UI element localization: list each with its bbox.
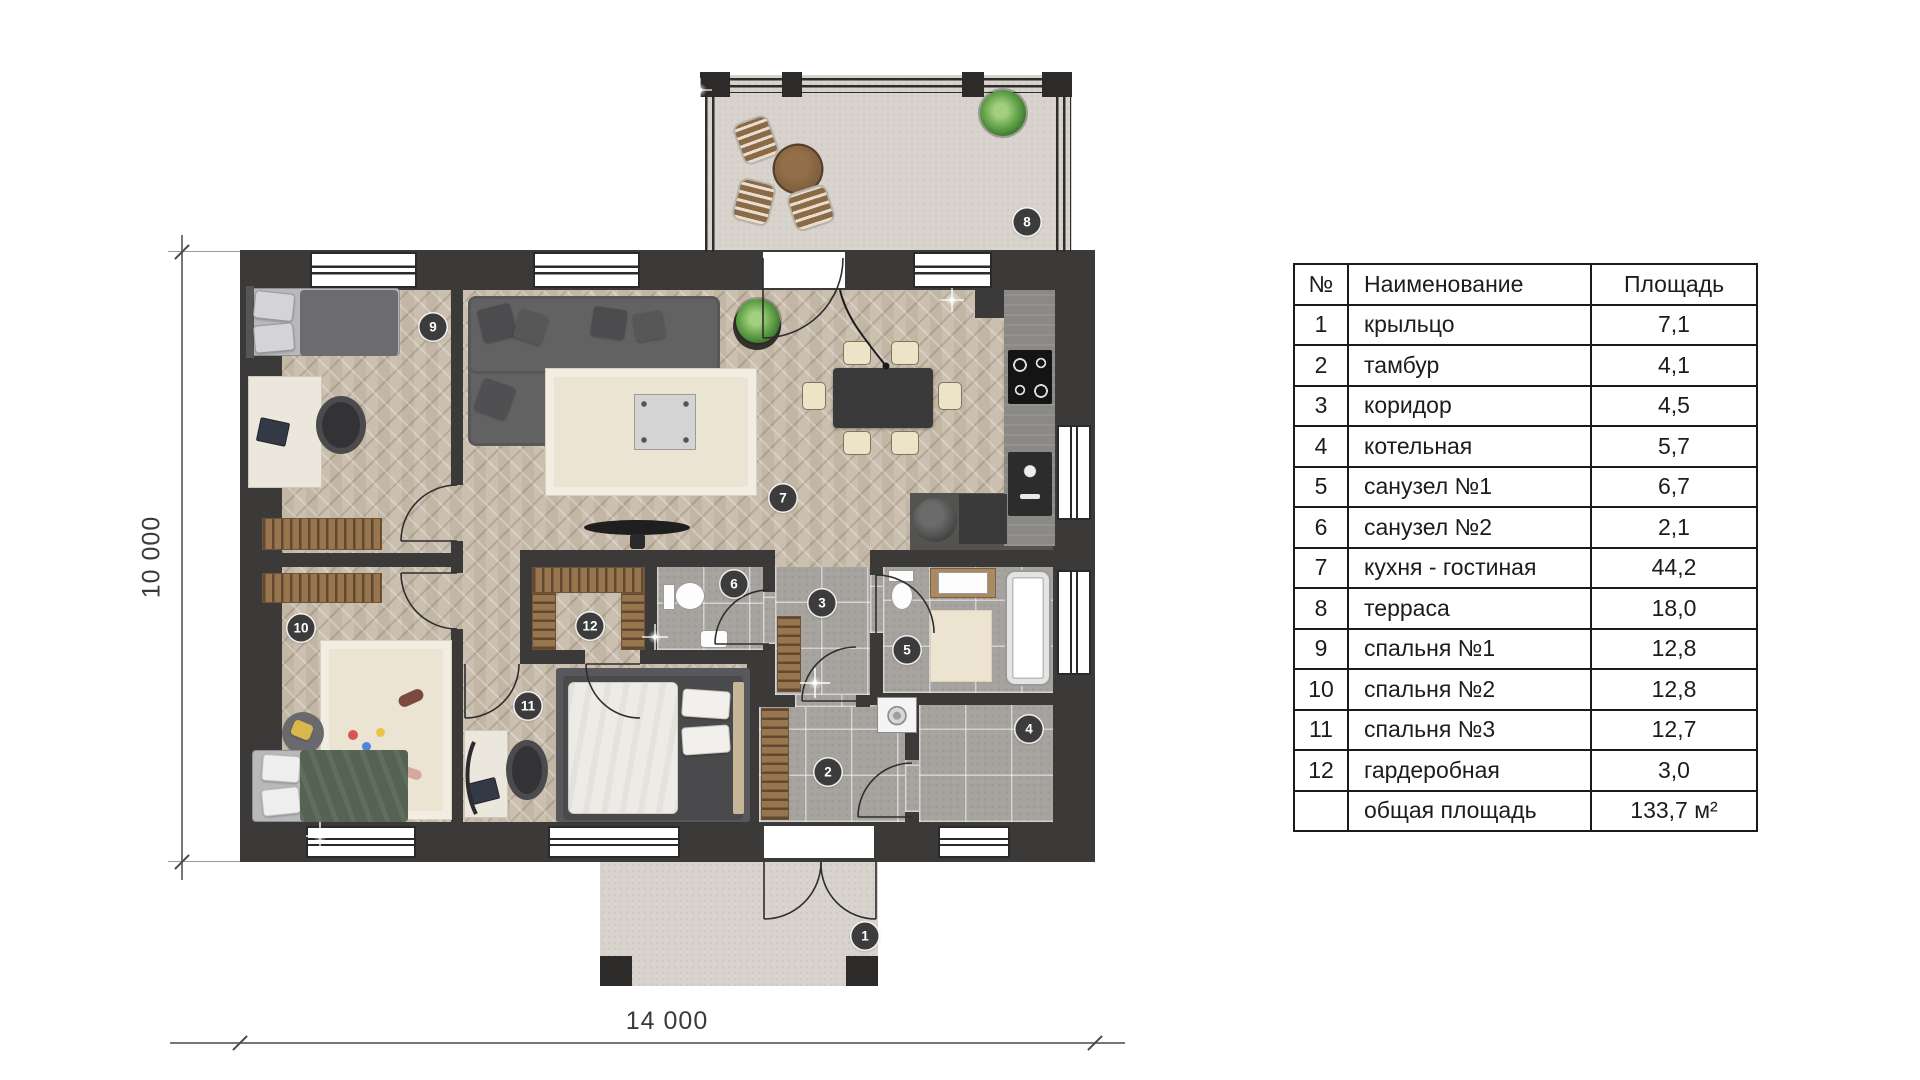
desk [464, 730, 508, 818]
cell-name: санузел №1 [1348, 467, 1591, 508]
cell-area: 5,7 [1591, 426, 1757, 467]
area-table-body: 1крыльцо7,12тамбур4,13коридор4,54котельн… [1294, 305, 1757, 832]
wall-segment [870, 633, 883, 693]
table-row: 8терраса18,0 [1294, 588, 1757, 629]
cell-num: 2 [1294, 345, 1348, 386]
cell-num: 8 [1294, 588, 1348, 629]
tile-doorway [905, 760, 919, 812]
cell-name: санузел №2 [1348, 507, 1591, 548]
terrace-railing-top [700, 78, 1072, 93]
dimension-height-label: 10 000 [138, 516, 167, 598]
wall-segment [640, 650, 775, 664]
cell-num [1294, 791, 1348, 832]
pillow [681, 724, 731, 755]
bed-blanket [300, 290, 398, 356]
pillow [261, 754, 301, 784]
entrance-opening [764, 826, 874, 858]
table-row: 1крыльцо7,1 [1294, 305, 1757, 346]
cell-name: терраса [1348, 588, 1591, 629]
terrace-post [782, 72, 802, 97]
cell-area: 4,5 [1591, 386, 1757, 427]
toilet-bowl [675, 582, 705, 610]
terrace-post [962, 72, 984, 97]
table-row: 11спальня №312,7 [1294, 710, 1757, 751]
cell-num: 11 [1294, 710, 1348, 751]
cell-num: 4 [1294, 426, 1348, 467]
coffee-table [634, 394, 696, 450]
toy [348, 730, 358, 740]
tile-doorway [763, 592, 775, 644]
terrace-post [1042, 72, 1072, 97]
washing-machine [877, 697, 917, 733]
cell-num: 12 [1294, 750, 1348, 791]
cell-name: спальня №2 [1348, 669, 1591, 710]
coat-rack [777, 616, 801, 692]
terrace-plant [980, 90, 1026, 136]
cell-area: 6,7 [1591, 467, 1757, 508]
small-sink [700, 630, 728, 648]
pillow [253, 290, 296, 322]
window [1057, 425, 1091, 520]
cell-area: 7,1 [1591, 305, 1757, 346]
cell-area: 4,1 [1591, 345, 1757, 386]
terrace-door-opening [763, 252, 845, 288]
toilet-tank [663, 584, 675, 610]
col-header-name: Наименование [1348, 264, 1591, 305]
dimension-line-horizontal [170, 1042, 1125, 1044]
window [310, 252, 417, 288]
cell-num: 5 [1294, 467, 1348, 508]
table-row: 2тамбур4,1 [1294, 345, 1757, 386]
dimension-line-vertical [181, 235, 183, 880]
table-row: общая площадь133,7 м² [1294, 791, 1757, 832]
table-row: 12гардеробная3,0 [1294, 750, 1757, 791]
table-row: 9спальня №112,8 [1294, 629, 1757, 670]
col-header-area: Площадь [1591, 264, 1757, 305]
toilet-bowl [891, 582, 913, 610]
living-plant [736, 299, 780, 343]
floor-plan: 123456789101112 10 000 14 000 [0, 0, 1200, 1080]
cell-area: 12,8 [1591, 669, 1757, 710]
bed-headboard [246, 286, 254, 358]
desk-chair [506, 740, 548, 800]
col-header-num: № [1294, 264, 1348, 305]
window [533, 252, 640, 288]
table-row: 3коридор4,5 [1294, 386, 1757, 427]
bed-duvet [568, 682, 678, 814]
dining-chair [938, 382, 962, 410]
coat-rack [761, 708, 789, 820]
window [1057, 570, 1091, 675]
toy [376, 728, 385, 737]
cell-name: котельная [1348, 426, 1591, 467]
boiler-floor [919, 705, 1055, 822]
wall-segment [775, 695, 795, 707]
cell-name: коридор [1348, 386, 1591, 427]
wall-segment [520, 567, 532, 650]
wall-segment [451, 290, 463, 485]
wardrobe-shelf [532, 567, 645, 593]
vanity-sink [938, 572, 988, 594]
window [548, 826, 680, 858]
dining-table [833, 368, 933, 428]
cell-num: 10 [1294, 669, 1348, 710]
cell-num: 7 [1294, 548, 1348, 589]
table-row: 5санузел №16,7 [1294, 467, 1757, 508]
table-row: 10спальня №212,8 [1294, 669, 1757, 710]
wall-segment [451, 541, 463, 573]
kitchen-sink [1008, 452, 1052, 516]
table-row: 6санузел №22,1 [1294, 507, 1757, 548]
kitchen-island [959, 494, 1007, 544]
dining-chair [843, 431, 871, 455]
porch-post [600, 956, 632, 986]
wall-segment [282, 553, 451, 567]
desk-chair [316, 396, 366, 454]
screenshot-canvas: 123456789101112 10 000 14 000 № Наименов… [0, 0, 1920, 1080]
bed-headboard [733, 682, 744, 814]
wall-segment [520, 550, 763, 567]
pillow [253, 322, 295, 353]
porch-floor [600, 862, 878, 986]
tile-doorway [795, 695, 856, 707]
kitchen-bin [913, 498, 957, 542]
wardrobe-shelf [621, 593, 645, 650]
cell-name: тамбур [1348, 345, 1591, 386]
dining-chair [891, 431, 919, 455]
wall-right [1053, 250, 1095, 862]
bookshelf [262, 518, 382, 550]
terrace-post [700, 72, 730, 97]
tv-console [584, 520, 690, 535]
cooktop [1008, 350, 1052, 404]
tv-stand [630, 534, 645, 549]
tile-doorway [870, 575, 883, 633]
dining-chair [891, 341, 919, 365]
bed-green-blanket [300, 750, 408, 822]
wall-segment [870, 550, 1055, 567]
cell-name: крыльцо [1348, 305, 1591, 346]
window [938, 826, 1010, 858]
terrace-railing-right [1056, 78, 1071, 252]
pillow [681, 688, 731, 719]
cell-num: 3 [1294, 386, 1348, 427]
cell-name: гардеробная [1348, 750, 1591, 791]
cell-name: спальня №3 [1348, 710, 1591, 751]
cell-name: спальня №1 [1348, 629, 1591, 670]
wall-segment [905, 812, 919, 822]
dining-chair [843, 341, 871, 365]
dimension-width-label: 14 000 [626, 1007, 708, 1036]
cell-area: 18,0 [1591, 588, 1757, 629]
wall-segment [856, 695, 870, 707]
sofa-pillow [632, 310, 666, 343]
cell-num: 6 [1294, 507, 1348, 548]
cell-area: 2,1 [1591, 507, 1757, 548]
table-header-row: № Наименование Площадь [1294, 264, 1757, 305]
cell-area: 44,2 [1591, 548, 1757, 589]
cell-num: 9 [1294, 629, 1348, 670]
bathtub [1005, 570, 1051, 686]
toilet-tank [888, 570, 914, 582]
cell-name: кухня - гостиная [1348, 548, 1591, 589]
pillow [261, 786, 302, 817]
wall-segment [870, 567, 883, 575]
dining-chair [802, 382, 826, 410]
sofa-pillow [590, 306, 628, 340]
wall-segment [763, 550, 775, 592]
table-row: 7кухня - гостиная44,2 [1294, 548, 1757, 589]
porch-post [846, 956, 878, 986]
area-table: № Наименование Площадь 1крыльцо7,12тамбу… [1293, 263, 1758, 832]
cell-area: 3,0 [1591, 750, 1757, 791]
window [913, 252, 992, 288]
wall-segment [451, 629, 463, 822]
cell-area: 12,8 [1591, 629, 1757, 670]
cell-num: 1 [1294, 305, 1348, 346]
table-row: 4котельная5,7 [1294, 426, 1757, 467]
bath-mat [930, 610, 992, 682]
wall-segment [645, 567, 657, 650]
bookshelf [262, 573, 382, 603]
window [306, 826, 416, 858]
terrace-railing-left [705, 96, 717, 252]
wall-segment [520, 650, 585, 664]
cell-name: общая площадь [1348, 791, 1591, 832]
cell-area: 133,7 м² [1591, 791, 1757, 832]
cell-area: 12,7 [1591, 710, 1757, 751]
wardrobe-shelf [532, 593, 556, 650]
